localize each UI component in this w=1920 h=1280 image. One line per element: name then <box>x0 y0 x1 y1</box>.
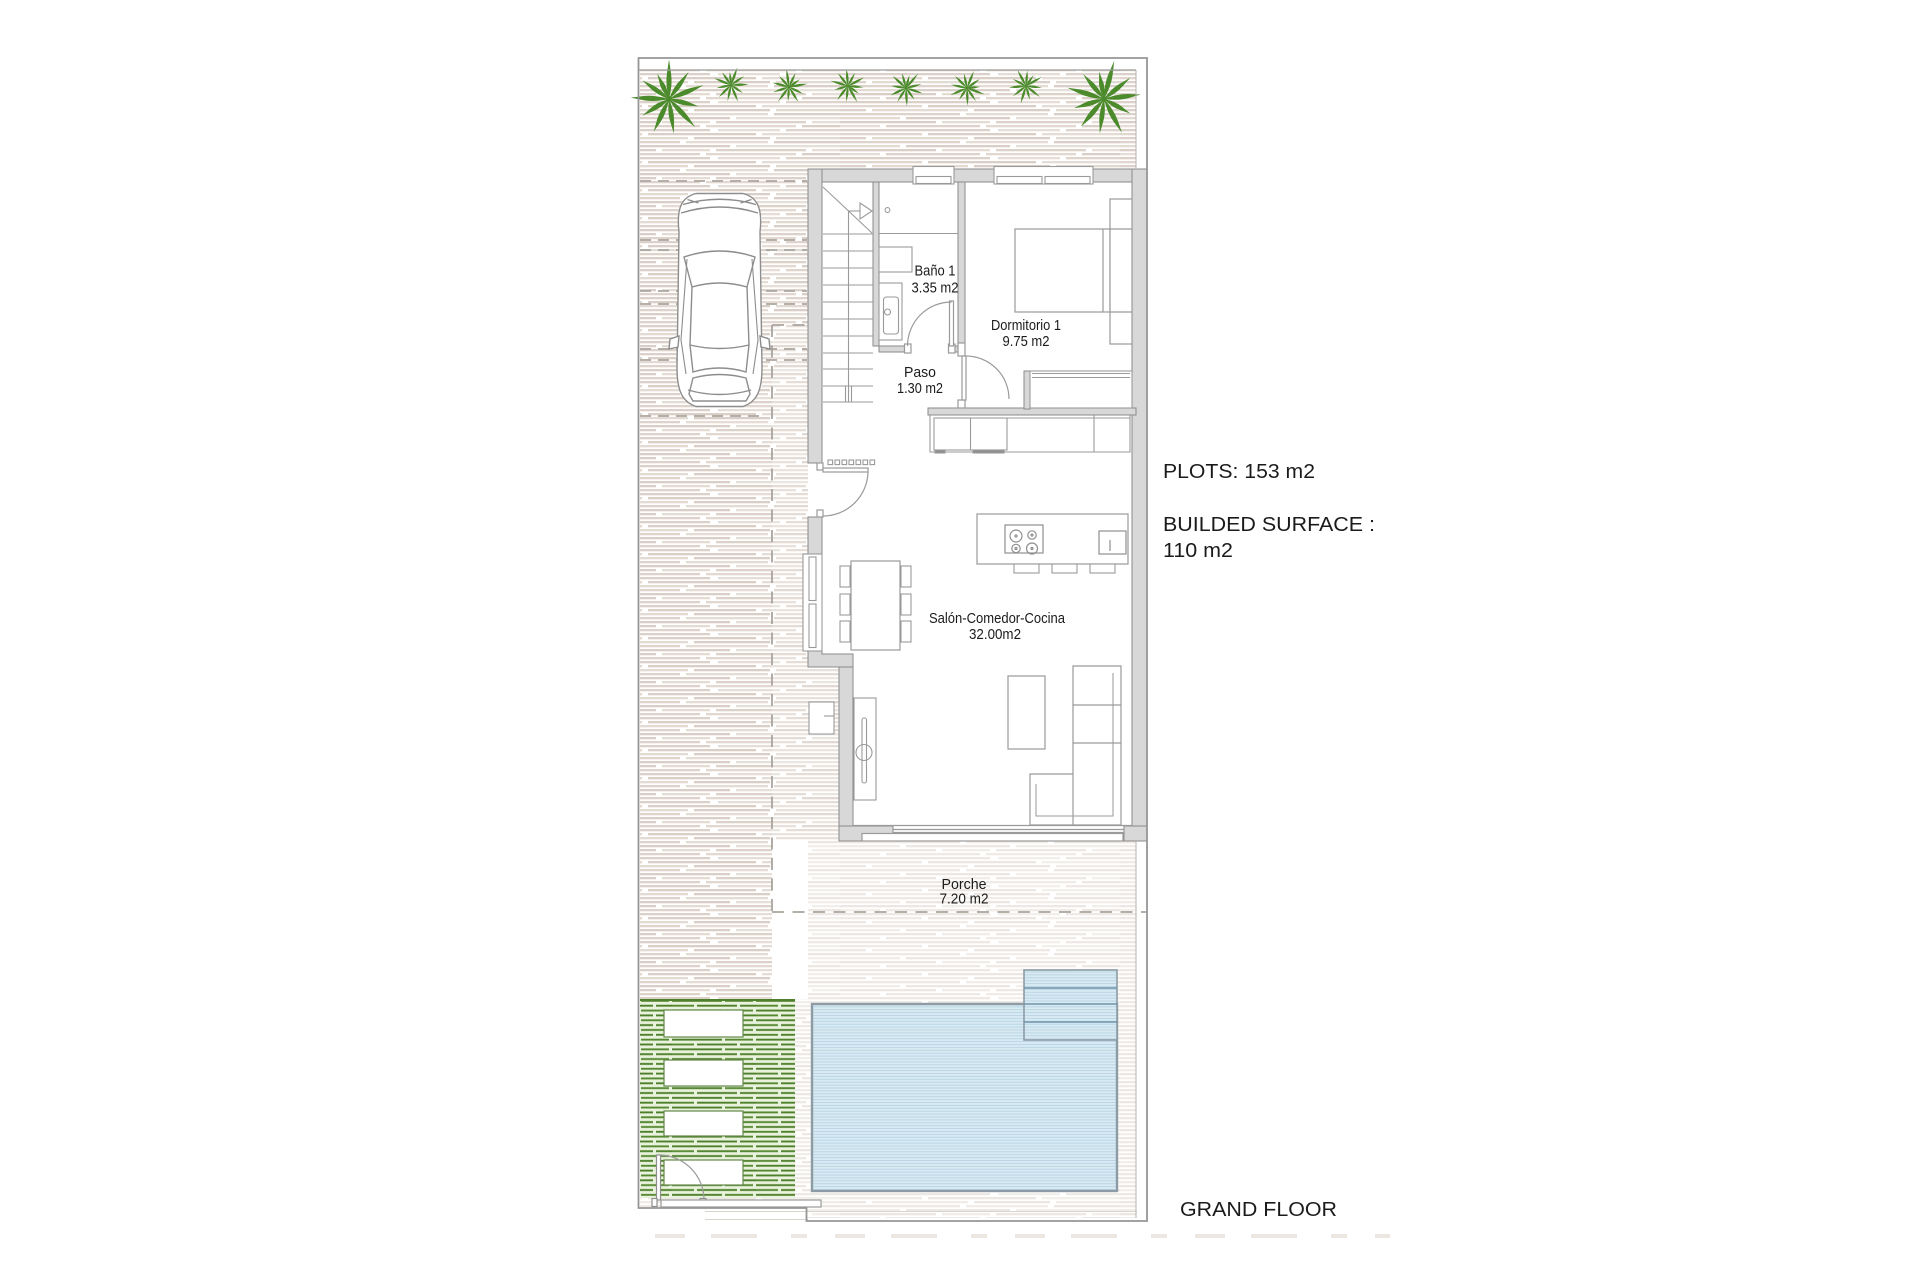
svg-text:Paso: Paso <box>904 364 936 381</box>
svg-text:9.75 m2: 9.75 m2 <box>1003 333 1050 350</box>
svg-text:BUILDED SURFACE :: BUILDED SURFACE : <box>1163 514 1375 536</box>
svg-text:Baño 1: Baño 1 <box>915 263 956 280</box>
svg-text:PLOTS: 153 m2: PLOTS: 153 m2 <box>1163 461 1315 483</box>
svg-text:1.30 m2: 1.30 m2 <box>897 380 943 397</box>
svg-text:Salón-Comedor-Cocina: Salón-Comedor-Cocina <box>929 610 1066 627</box>
svg-text:GRAND FLOOR: GRAND FLOOR <box>1180 1199 1337 1221</box>
svg-text:Dormitorio 1: Dormitorio 1 <box>991 317 1061 334</box>
svg-text:32.00m2: 32.00m2 <box>969 626 1021 643</box>
svg-text:7.20 m2: 7.20 m2 <box>940 891 989 908</box>
svg-text:110 m2: 110 m2 <box>1163 540 1233 562</box>
svg-text:3.35 m2: 3.35 m2 <box>912 280 959 297</box>
